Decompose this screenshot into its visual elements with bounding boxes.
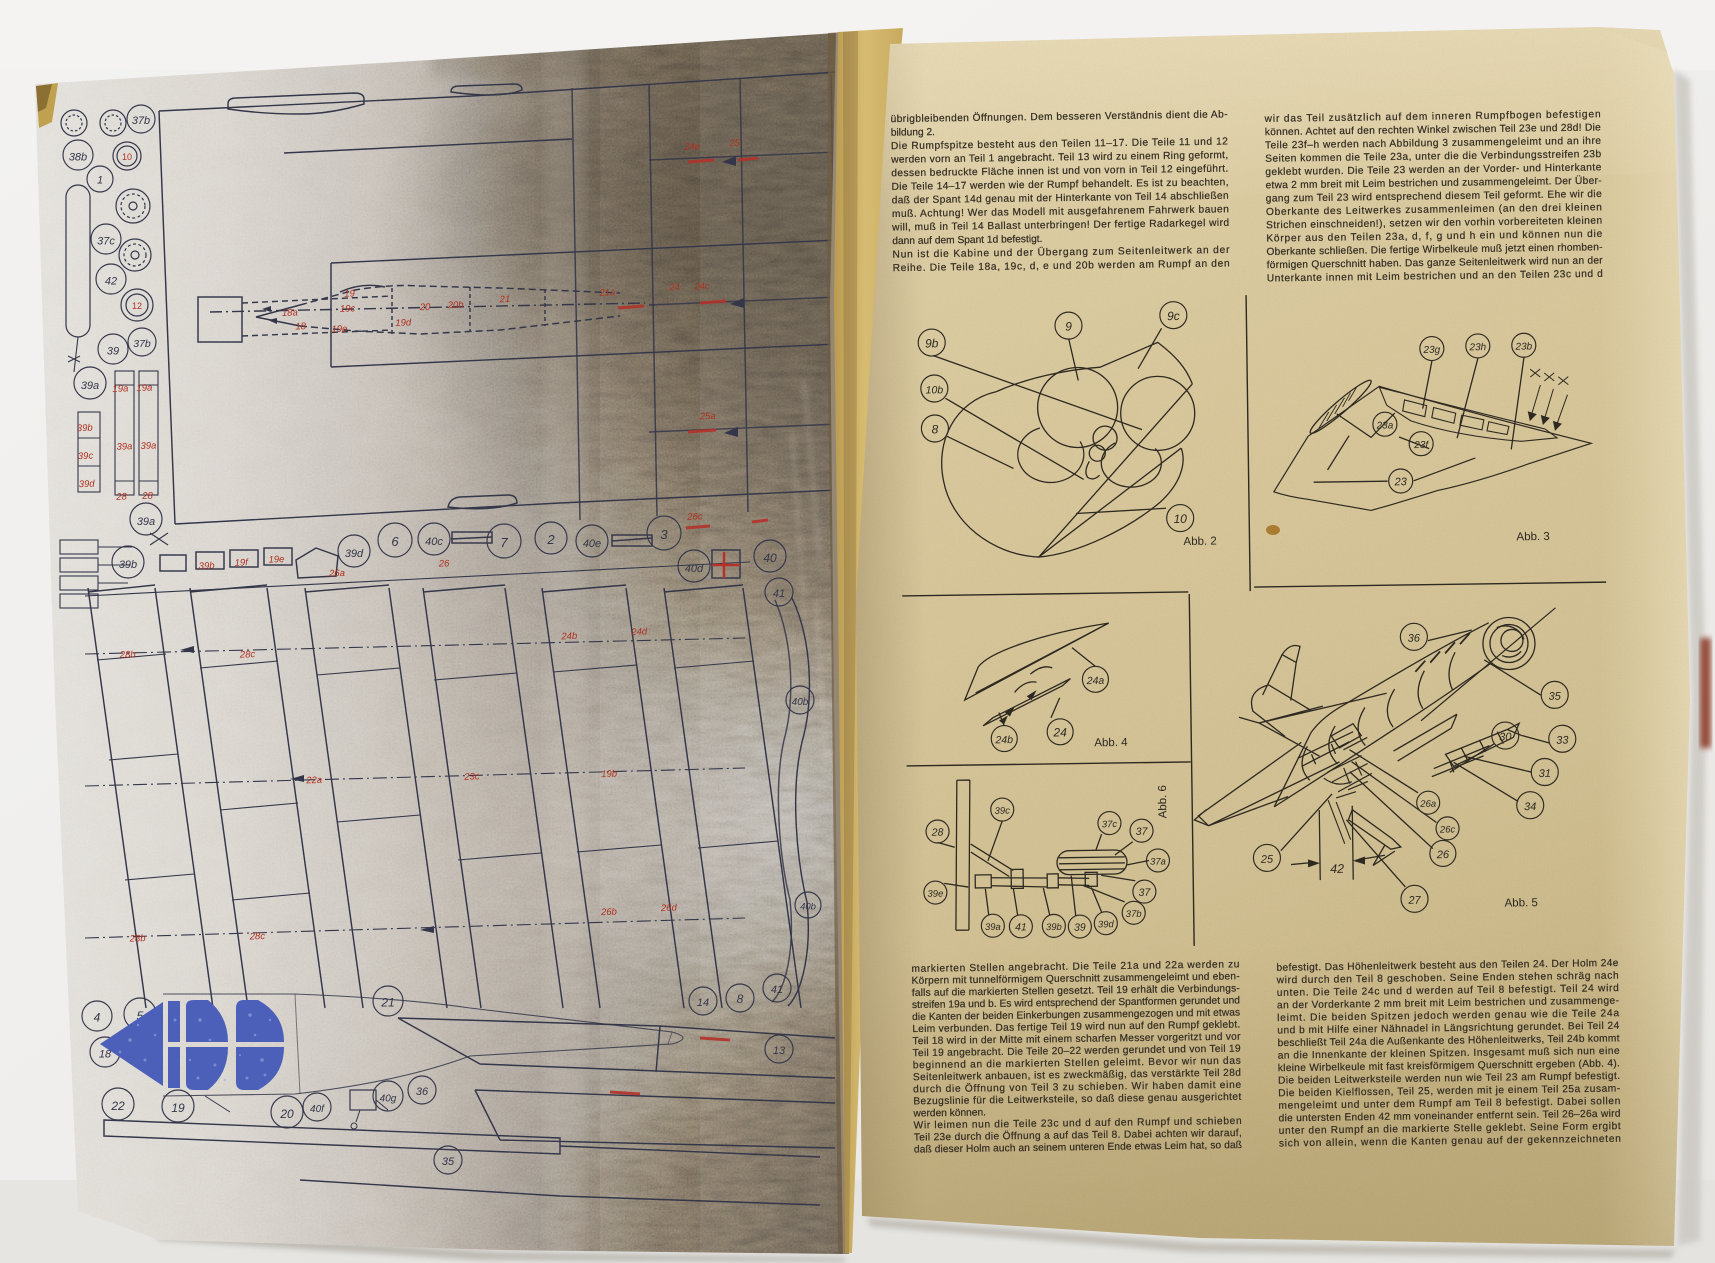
svg-text:39c: 39c [78,451,94,463]
svg-text:Abb. 2: Abb. 2 [1183,536,1216,548]
svg-text:6: 6 [391,534,399,549]
svg-text:19a: 19a [136,383,152,395]
svg-text:28b: 28b [119,649,136,661]
svg-text:9: 9 [1065,319,1072,333]
svg-text:27: 27 [1407,895,1421,907]
svg-text:19e: 19e [268,554,284,566]
svg-text:14: 14 [697,997,709,1009]
svg-text:20: 20 [419,302,432,313]
svg-text:23: 23 [1393,476,1407,488]
svg-text:28c: 28c [248,931,265,943]
svg-text:21: 21 [380,995,394,1009]
svg-text:18a: 18a [282,307,298,319]
svg-text:42: 42 [105,275,117,287]
svg-text:26a: 26a [328,568,345,580]
svg-text:8: 8 [931,422,938,436]
svg-text:39a: 39a [985,922,1001,933]
svg-text:25: 25 [1260,854,1274,866]
svg-text:24e: 24e [683,141,700,153]
svg-text:40b: 40b [792,697,809,708]
svg-text:39a: 39a [81,380,99,392]
svg-text:2: 2 [546,532,555,547]
svg-text:39d: 39d [345,548,364,560]
svg-text:24c: 24c [693,281,710,293]
svg-text:41: 41 [771,984,783,996]
svg-text:33: 33 [1556,735,1569,747]
svg-text:23f: 23f [1413,440,1429,451]
svg-text:26d: 26d [660,903,678,915]
svg-text:18: 18 [295,321,307,332]
svg-text:19f: 19f [234,557,249,569]
svg-text:20b: 20b [447,300,464,312]
svg-text:28: 28 [141,491,154,502]
svg-text:23a: 23a [1376,420,1394,431]
svg-text:26b: 26b [600,907,617,919]
svg-text:19e: 19e [331,324,347,336]
svg-text:19d: 19d [395,317,412,329]
svg-text:39b: 39b [77,423,93,435]
svg-text:39d: 39d [79,479,96,491]
svg-text:bildung 2.: bildung 2. [891,127,935,139]
svg-text:39d: 39d [1098,919,1115,930]
svg-text:40b: 40b [800,902,816,913]
svg-text:39: 39 [107,345,119,357]
svg-text:19c: 19c [340,303,356,315]
svg-text:4: 4 [94,1010,101,1024]
svg-text:3: 3 [660,527,668,542]
svg-text:36: 36 [416,1086,429,1098]
svg-text:37b: 37b [1126,909,1142,920]
svg-text:31: 31 [1539,768,1551,780]
svg-text:39a: 39a [137,516,155,528]
svg-text:21: 21 [498,294,510,305]
svg-text:9b: 9b [925,336,939,350]
svg-text:42: 42 [1330,862,1344,876]
svg-text:26: 26 [438,558,451,569]
svg-text:28c: 28c [239,649,256,661]
svg-text:9c: 9c [1167,309,1180,323]
svg-text:dann auf dem Spant 1d befestig: dann auf dem Spant 1d befestigt. [892,234,1042,247]
svg-text:19: 19 [344,288,356,299]
svg-text:13: 13 [773,1045,786,1057]
svg-text:39e: 39e [927,889,943,900]
svg-text:23h: 23h [1468,342,1486,353]
svg-text:20: 20 [279,1107,294,1121]
svg-text:24: 24 [1052,725,1067,739]
svg-text:39b: 39b [199,560,215,572]
svg-text:22: 22 [110,1099,125,1113]
svg-text:40c: 40c [425,536,443,548]
svg-text:37b: 37b [132,115,150,127]
svg-text:36: 36 [1408,633,1421,645]
svg-text:7: 7 [500,535,508,550]
svg-text:werden können.: werden können. [912,1107,986,1119]
svg-text:37c: 37c [1102,819,1118,830]
svg-text:26a: 26a [1419,799,1436,810]
svg-text:39a: 39a [116,441,132,453]
svg-text:22a: 22a [305,775,322,787]
svg-text:28: 28 [115,491,128,502]
svg-text:37a: 37a [1150,856,1166,867]
svg-text:1: 1 [97,175,103,187]
svg-text:23g: 23g [1422,345,1440,356]
svg-text:12: 12 [132,301,142,311]
svg-text:40e: 40e [583,538,601,550]
svg-text:40f: 40f [310,1104,325,1115]
svg-text:40g: 40g [380,1093,397,1104]
svg-text:25: 25 [728,138,741,149]
svg-text:19b: 19b [601,769,617,781]
svg-text:8: 8 [737,992,744,1006]
svg-text:39: 39 [1074,922,1086,934]
svg-text:34: 34 [1524,801,1536,813]
svg-text:30: 30 [1499,731,1512,743]
svg-text:Abb. 4: Abb. 4 [1094,737,1128,749]
svg-text:39c: 39c [995,806,1011,817]
svg-text:10: 10 [122,152,132,162]
svg-text:24d: 24d [630,626,648,638]
svg-text:Abb. 3: Abb. 3 [1516,531,1549,543]
svg-text:26c: 26c [686,511,703,523]
svg-text:35: 35 [1549,691,1562,703]
svg-text:10: 10 [1173,512,1187,526]
svg-text:21a: 21a [598,287,615,299]
svg-text:23c: 23c [463,771,480,783]
svg-text:24a: 24a [1086,675,1105,687]
svg-text:41: 41 [1015,921,1027,933]
svg-text:39a: 39a [140,440,156,452]
svg-text:24b: 24b [560,631,577,643]
svg-text:24: 24 [668,282,680,293]
svg-text:28: 28 [931,827,944,839]
svg-text:26: 26 [1436,849,1450,861]
svg-text:38b: 38b [69,151,87,163]
svg-text:40: 40 [763,551,777,565]
svg-text:37c: 37c [97,235,115,247]
svg-text:40d: 40d [685,563,704,575]
svg-text:23b: 23b [1514,341,1532,352]
svg-text:24b: 24b [994,734,1013,746]
svg-text:37: 37 [1138,887,1151,899]
svg-text:39b: 39b [119,559,137,571]
svg-text:28b: 28b [128,933,145,945]
svg-text:37: 37 [1136,826,1149,838]
svg-text:26c: 26c [1439,824,1456,835]
svg-text:19a: 19a [112,383,128,395]
svg-text:35: 35 [442,1156,455,1168]
svg-text:10b: 10b [926,384,944,396]
svg-text:37b: 37b [133,338,151,350]
svg-text:25a: 25a [699,411,716,423]
svg-text:Abb. 6: Abb. 6 [1157,785,1169,818]
svg-text:Abb. 5: Abb. 5 [1505,897,1538,909]
svg-text:19: 19 [171,1101,185,1115]
svg-text:41: 41 [773,588,785,600]
svg-text:39b: 39b [1046,922,1062,933]
